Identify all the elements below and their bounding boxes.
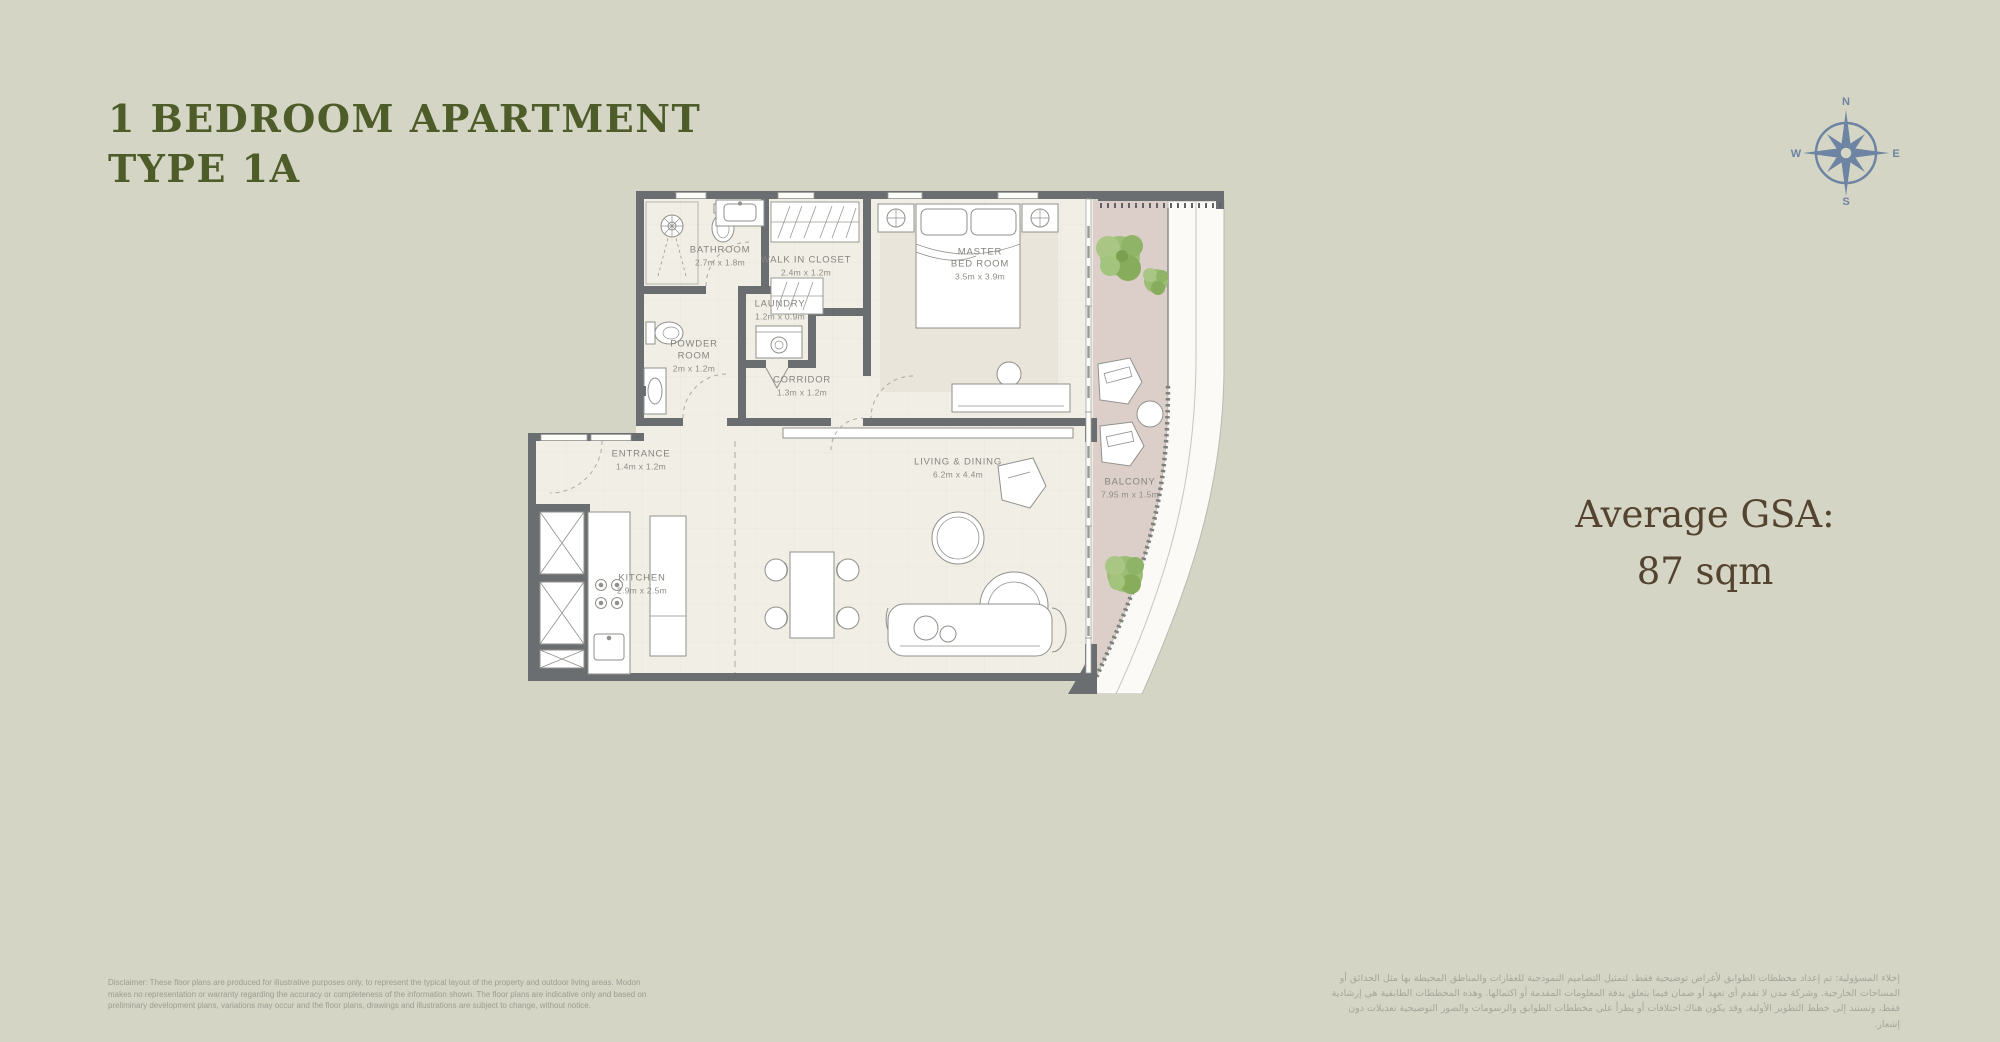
- dining-chair: [765, 607, 787, 629]
- kitchen-island: [650, 516, 686, 656]
- tv-console: [783, 428, 1073, 438]
- toilet-icon: [646, 322, 655, 344]
- dining-table: [790, 552, 834, 638]
- compass-n-label: N: [1842, 96, 1850, 108]
- floor-plan-drawing: [528, 186, 1228, 694]
- gsa-line2: 87 sqm: [1540, 543, 1870, 600]
- dining-chair: [837, 607, 859, 629]
- average-gsa-text: Average GSA: 87 sqm: [1540, 486, 1870, 601]
- desk-chair: [997, 362, 1021, 386]
- compass-s-label: S: [1842, 196, 1849, 206]
- washing-machine-icon: [756, 326, 802, 358]
- balcony-glazing: [1085, 199, 1092, 673]
- vanity-sink: [644, 368, 666, 414]
- disclaimer-english: Disclaimer: These floor plans are produc…: [108, 977, 664, 1012]
- sofa: [886, 604, 1066, 656]
- dining-chair: [765, 559, 787, 581]
- dining-chair: [837, 559, 859, 581]
- page-title-line1: 1 BEDROOM APARTMENT: [108, 94, 701, 144]
- desk: [952, 384, 1070, 412]
- kitchen-fixtures: [540, 512, 686, 674]
- compass-icon: N E S W: [1790, 94, 1902, 206]
- page: 1 BEDROOM APARTMENT TYPE 1A N E S W Aver…: [0, 0, 2000, 1042]
- floor-plan: BATHROOM 2.7m x 1.8m WALK IN CLOSET 2.4m…: [528, 186, 1228, 694]
- gsa-line1: Average GSA:: [1540, 486, 1870, 543]
- disclaimer-arabic: إخلاء المسؤولية: تم إعداد مخططات الطوابق…: [1330, 971, 1900, 1032]
- balcony-table: [1137, 401, 1163, 427]
- master-bedroom-furniture: [878, 204, 1070, 412]
- compass-e-label: E: [1892, 148, 1899, 160]
- compass-w-label: W: [1791, 148, 1802, 160]
- coffee-table: [932, 512, 984, 564]
- page-title: 1 BEDROOM APARTMENT TYPE 1A: [108, 94, 701, 194]
